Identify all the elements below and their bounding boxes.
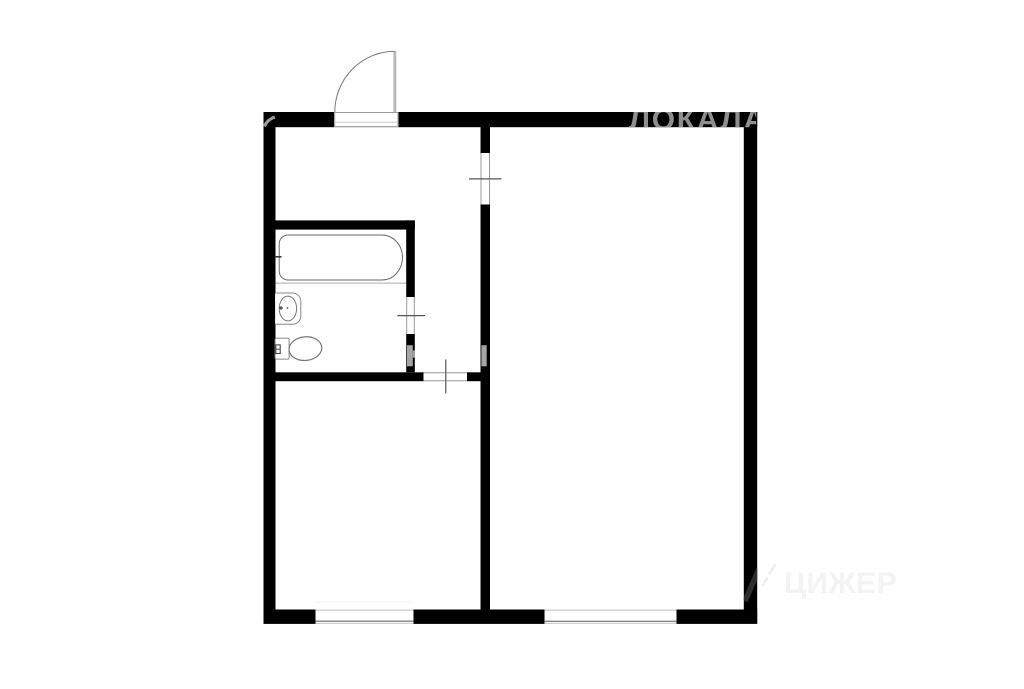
svg-text:ЦИЖЕР: ЦИЖЕР xyxy=(784,567,897,600)
